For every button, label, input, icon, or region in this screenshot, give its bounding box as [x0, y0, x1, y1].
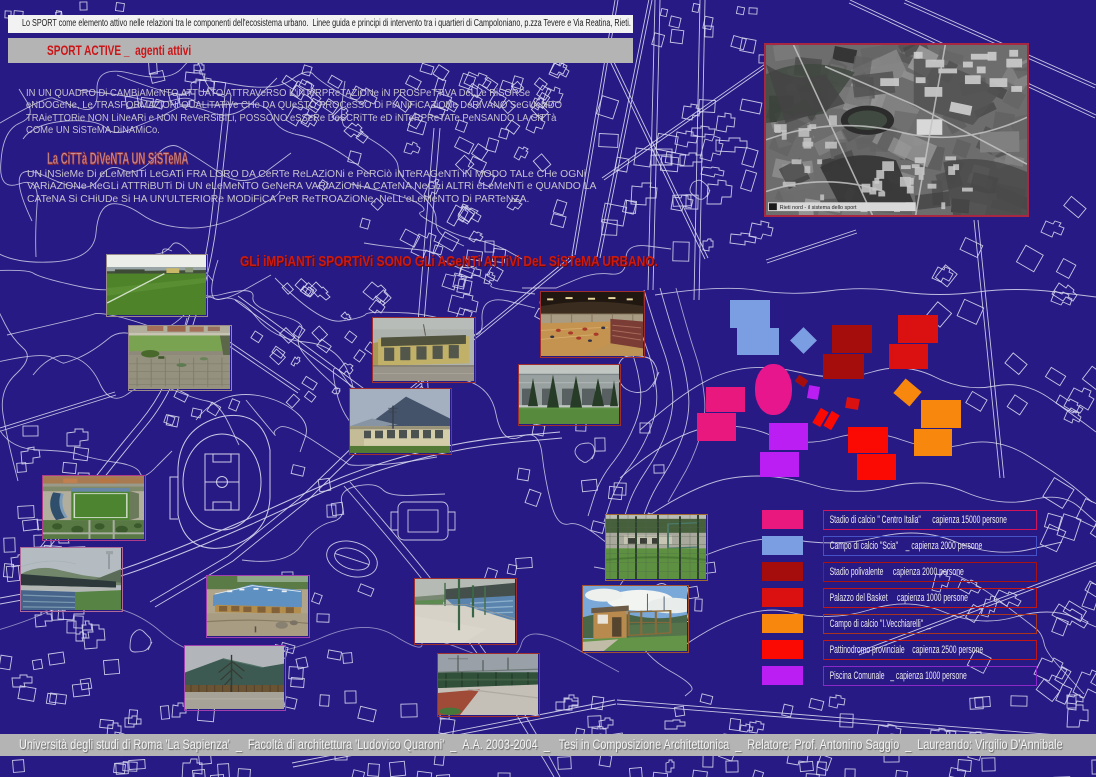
svg-text:Rieti nord - il sistema dello: Rieti nord - il sistema dello sport: [780, 205, 857, 211]
